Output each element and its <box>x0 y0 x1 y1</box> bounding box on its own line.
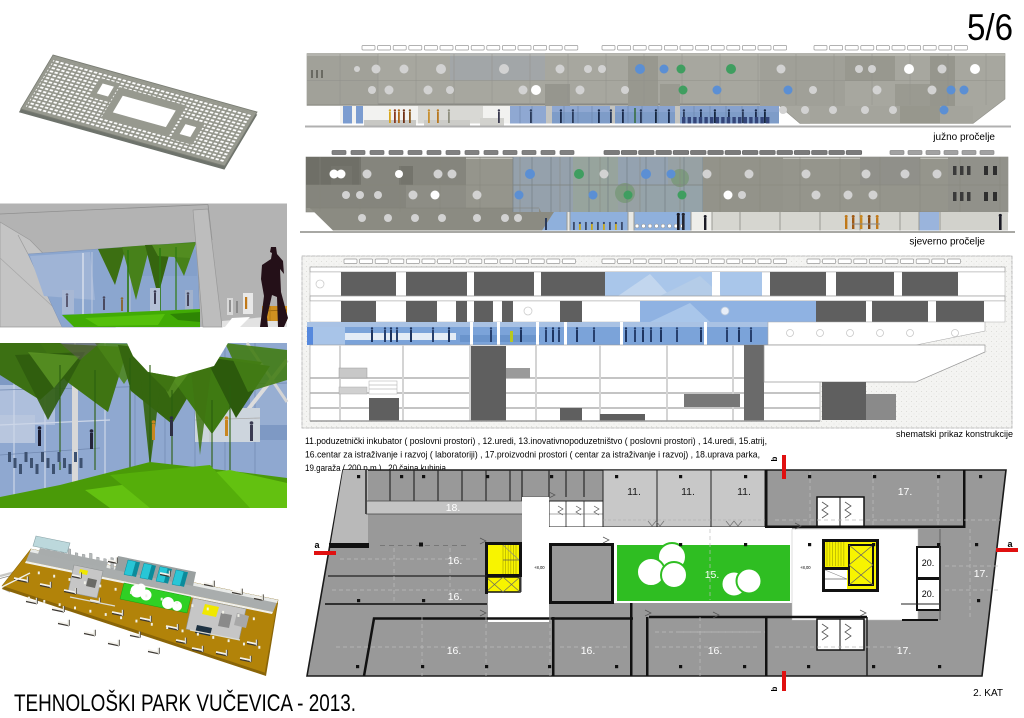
svg-text:+8,00: +8,00 <box>534 565 545 570</box>
svg-text:b: b <box>770 456 779 461</box>
svg-text:sjeverno pročelje: sjeverno pročelje <box>909 237 985 248</box>
svg-text:16.: 16. <box>581 645 596 657</box>
svg-text:shematski prikaz konstrukcije: shematski prikaz konstrukcije <box>896 429 1013 439</box>
svg-text:2. KAT: 2. KAT <box>973 688 1003 699</box>
svg-text:20.: 20. <box>922 589 935 599</box>
svg-text:17.: 17. <box>897 645 912 657</box>
svg-text:17.: 17. <box>898 486 913 498</box>
svg-text:11.: 11. <box>627 486 641 498</box>
svg-text:18.: 18. <box>446 502 461 514</box>
svg-text:5/6: 5/6 <box>967 7 1013 48</box>
svg-text:b: b <box>770 686 779 691</box>
svg-text:15.: 15. <box>705 569 720 581</box>
svg-text:južno pročelje: južno pročelje <box>932 132 995 143</box>
svg-text:+8,00: +8,00 <box>800 565 811 570</box>
svg-text:16.: 16. <box>448 555 463 567</box>
svg-text:11.poduzetnički inkubator ( po: 11.poduzetnički inkubator ( poslovni pro… <box>305 436 767 446</box>
svg-text:16.: 16. <box>708 645 723 657</box>
svg-text:16.: 16. <box>447 645 462 657</box>
svg-text:11.: 11. <box>681 486 695 498</box>
svg-text:16.centar za istraživanje i ra: 16.centar za istraživanje i razvoj ( lab… <box>305 450 760 460</box>
svg-text:TEHNOLOŠKI PARK VUČEVICA - 201: TEHNOLOŠKI PARK VUČEVICA - 2013. <box>14 689 356 717</box>
svg-text:20.: 20. <box>922 558 935 568</box>
svg-text:11.: 11. <box>737 486 751 498</box>
svg-text:16.: 16. <box>448 591 463 603</box>
svg-text:17.: 17. <box>974 568 989 580</box>
